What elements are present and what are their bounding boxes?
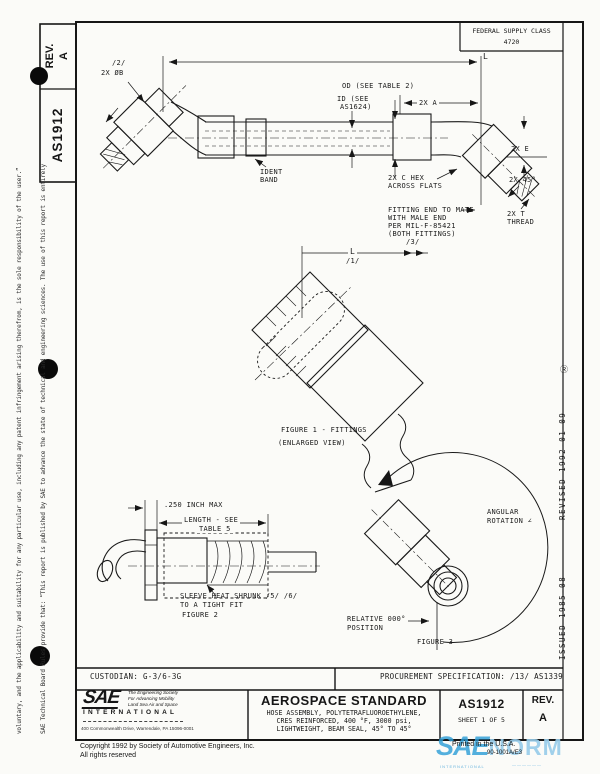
standard-subtitle-line2: CRES REINFORCED, 400 °F, 3000 psi, [248,717,440,725]
callout-thread-line1: 2X T [507,210,525,218]
callout-thread-line2: THREAD [507,218,534,226]
doc-number-tab: AS1912 [50,95,66,175]
watermark-sub1: INTERNATIONAL [440,764,485,769]
left-margin-disclaimer-line1: SAE Technical Board Rules provide that: … [40,164,47,734]
logo-separator [83,721,183,722]
logo-international: INTERNATIONAL [83,709,177,716]
rev-label: REV. [523,695,563,706]
standard-subtitle-line3: LIGHTWEIGHT, BEAM SEAL, 45° TO 45° [248,725,440,733]
dim-2x-45: 2X 45° [509,176,536,184]
dim-2x-e: 2X E [511,145,529,153]
fig2-caption: FIGURE 2 [182,611,218,619]
revised-date-text: REVISED 1992-01-09 [558,412,567,520]
callout-mate-line1: FITTING END TO MATE [388,206,474,214]
federal-supply-class-value: 4720 [460,37,563,48]
rev-tab-label: REV. [43,26,57,86]
left-margin-disclaimer-line2: voluntary, and the applicability and sui… [16,168,23,734]
callout-mate-line3: PER MIL-F-85421 [388,222,456,230]
rev-tab: REV. A [43,26,73,86]
procurement-spec-field: PROCUREMENT SPECIFICATION: /13/ AS1339 [380,672,563,681]
standard-subtitle-line1: HOSE ASSEMBLY, POLYTETRAFLUOROETHYLENE, [248,709,440,717]
dim-overall-length: L [483,52,488,61]
fig3-relative-line1: RELATIVE 000° [347,615,406,623]
printed-in-usa: Printed in the U.S.A. [452,741,515,748]
sae-logo: SAE [82,689,121,709]
callout-hex-line1: 2X C HEX [388,174,424,182]
callout-ident-line1: IDENT [260,168,283,176]
callout-id-line1: ID (SEE [337,95,369,103]
figure2-linework [94,500,320,600]
rev-value: A [523,712,563,724]
issued-date-text: ISSUED 1985-08 [558,576,567,660]
copyright-line1: Copyright 1992 by Society of Automotive … [80,743,255,750]
rev-tab-value: A [57,26,71,86]
fig3-note-line1: ANGULAR [487,508,519,516]
figure1-linework [250,246,428,492]
fig2-dim-length-line1: LENGTH - SEE [182,516,240,524]
callout-id-line2: AS1624) [340,103,372,111]
watermark-sub2: —————— [512,762,542,767]
fig1-caption-line2: (ENLARGED VIEW) [278,439,346,447]
callout-ident-line2: BAND [260,176,278,184]
fig3-note-line2: ROTATION ∠ [487,517,532,525]
fig2-note-line1: SLEEVE HEAT SHRUNK /5/ /6/ [180,592,297,600]
fig1-caption-line1: FIGURE 1 - FITTINGS [281,426,367,434]
standard-title: AEROSPACE STANDARD [248,693,440,708]
callout-od: OD (SEE TABLE 2) [342,82,414,90]
doc-number: AS1912 [440,697,523,711]
logo-address: 400 Commonwealth Drive, Warrendale, PA 1… [81,726,194,731]
main-assembly-linework [86,56,552,214]
dim-2x-a: 2X A [417,99,439,107]
fig1-flag-1: /1/ [346,257,360,265]
fig2-dim-length-line2: TABLE 5 [197,525,233,533]
sheet-number: SHEET 1 OF 5 [440,716,523,724]
copyright-line2: All rights reserved [80,752,136,759]
callout-mate-line2: WITH MALE END [388,214,447,222]
flag-note-2: /2/ [112,59,126,67]
federal-supply-class-label: FEDERAL SUPPLY CLASS [460,26,563,37]
callout-mate-flag3: /3/ [406,238,420,246]
custodian-field: CUSTODIAN: G-3/6-3G [90,672,182,681]
drawing-linework [0,0,600,774]
callout-hex-line2: ACROSS FLATS [388,182,442,190]
fig2-note-line2: TO A TIGHT FIT [180,601,243,609]
print-code: 90-1001A/E3 [487,750,522,756]
registered-mark: Ⓡ [560,364,568,375]
fig3-relative-line2: POSITION [347,624,383,632]
logo-tagline-line3: Land Sea Air and Space [128,702,178,708]
fig1-dim-l: L [348,247,357,256]
callout-mate-line4: (BOTH FITTINGS) [388,230,456,238]
scanned-standard-page: { "header": { "fsc_label": "FEDERAL SUPP… [0,0,600,774]
fig2-dim-250: .250 INCH MAX [164,501,223,509]
callout-dia-b: 2X ØB [101,69,124,77]
fig3-caption: FIGURE 3 [417,638,453,646]
